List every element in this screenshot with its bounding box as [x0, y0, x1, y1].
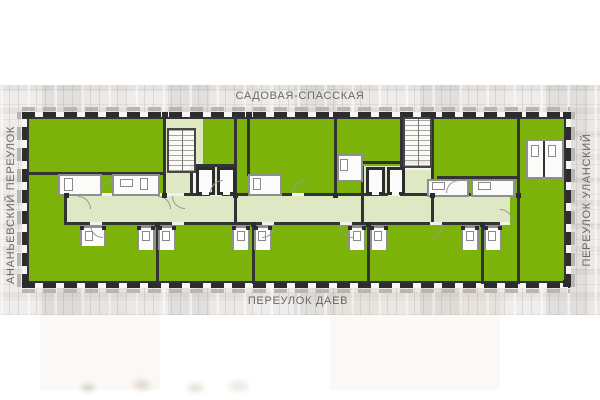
interior-wall	[517, 114, 520, 284]
column-marker	[333, 193, 338, 198]
toilet	[140, 178, 148, 190]
exterior-wall-top-line	[22, 117, 570, 119]
column-marker	[333, 112, 339, 118]
bathtub	[64, 178, 73, 191]
exterior-wall-bottom	[22, 283, 570, 288]
photo-vegetation	[45, 371, 260, 399]
toilet	[548, 145, 556, 157]
column-marker	[480, 222, 485, 227]
column-marker	[155, 222, 160, 227]
toilet	[237, 231, 245, 241]
column-marker	[430, 193, 435, 198]
toilet	[466, 231, 474, 241]
column-marker	[64, 193, 69, 198]
toilet	[374, 231, 382, 241]
exterior-wall-left-line	[27, 112, 29, 287]
column-marker	[162, 112, 168, 118]
corridor-wall-south	[67, 222, 510, 225]
corridor	[67, 195, 510, 222]
toilet	[353, 231, 361, 241]
street-label-ananyevskiy-pereulok: АНАНЬЕВСКИЙ ПЕРЕУЛОК	[5, 120, 17, 290]
interior-wall	[543, 141, 545, 177]
door-gap	[500, 222, 510, 225]
staircase-2	[403, 117, 432, 168]
column-marker	[233, 193, 238, 198]
window-sill-row-right	[571, 112, 575, 287]
column-marker	[162, 193, 167, 198]
toilet	[531, 145, 539, 157]
toilet	[253, 178, 261, 190]
toilet	[488, 231, 496, 241]
street-label-sadovaya-spasskaya: САДОВАЯ-СПАССКАЯ	[180, 90, 420, 102]
staircase-1	[167, 128, 196, 173]
bathtub	[478, 182, 491, 190]
floorplan-viewport: САДОВАЯ-СПАССКАЯ ПЕРЕУЛОК ДАЕВ АНАНЬЕВСК…	[0, 0, 600, 400]
interior-wall	[64, 195, 67, 225]
street-label-pereulok-ulanskiy: ПЕРЕУЛОК УЛАНСКИЙ	[581, 115, 593, 285]
column-marker	[430, 112, 436, 118]
elevator	[387, 167, 405, 195]
bathtub	[432, 182, 445, 190]
exterior-wall-right	[566, 112, 571, 287]
door-gap	[292, 193, 304, 196]
toilet	[162, 231, 170, 241]
elevator	[366, 167, 385, 195]
toilet	[142, 231, 150, 241]
column-marker	[246, 112, 252, 118]
interior-wall	[247, 118, 250, 176]
window-sill-row-bottom	[22, 289, 570, 293]
corner-column	[22, 112, 29, 119]
column-marker	[251, 222, 256, 227]
column-marker	[516, 193, 521, 198]
column-marker	[516, 112, 522, 118]
corner-column	[563, 112, 570, 119]
window-sill-row-left	[17, 112, 21, 287]
bathtub	[120, 179, 133, 187]
toilet	[340, 159, 348, 171]
corner-column	[563, 280, 570, 287]
interior-wall	[163, 114, 166, 195]
column-marker	[366, 222, 371, 227]
door-gap	[172, 222, 184, 225]
corner-column	[22, 280, 29, 287]
window-sill-row-top	[22, 107, 570, 111]
street-label-pereulok-daev: ПЕРЕУЛОК ДАЕВ	[178, 295, 418, 307]
